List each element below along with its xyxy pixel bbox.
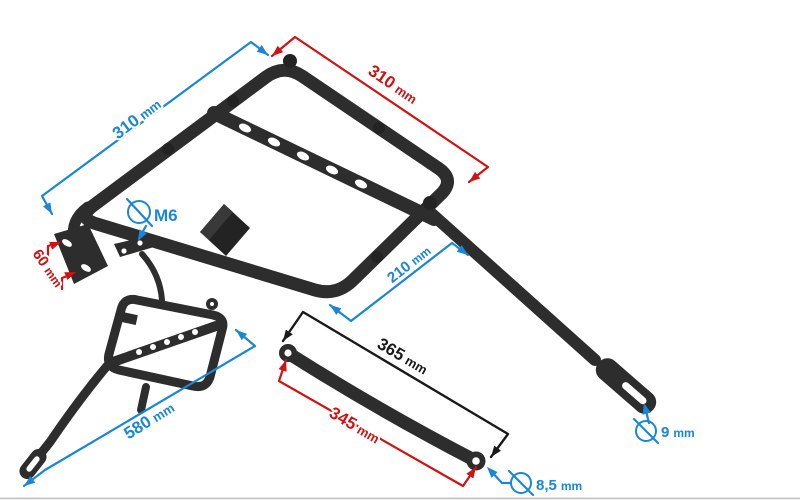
adjustment-hole — [164, 339, 170, 345]
photo-bottom-border — [0, 498, 800, 500]
leg-stub — [141, 387, 146, 410]
bumper-knob — [162, 143, 174, 155]
bumper-knob — [227, 95, 239, 107]
bumper-knob — [423, 196, 437, 210]
adjustment-hole — [192, 329, 198, 335]
bracket-hole — [121, 248, 126, 253]
strut-hole-right — [472, 457, 480, 465]
adjustment-hole — [178, 334, 184, 340]
adjustment-hole — [150, 344, 156, 350]
arm-hole-diameter-label: 9mm — [661, 424, 695, 441]
thread-size-label: M6 — [154, 206, 178, 225]
adjustment-hole — [136, 349, 142, 355]
bracket-hole — [137, 240, 142, 245]
product-photo: 310mm 210mm 580mm M6 9mm 8,5mm — [0, 0, 800, 500]
eyelet-hole — [210, 302, 214, 306]
dimension-diagram: 310mm 210mm 580mm M6 9mm 8,5mm — [0, 0, 800, 500]
bumper-knob — [371, 251, 383, 263]
strut-hole-left — [284, 349, 291, 356]
bumper-knob — [283, 54, 297, 68]
bumper-knob — [373, 122, 385, 134]
